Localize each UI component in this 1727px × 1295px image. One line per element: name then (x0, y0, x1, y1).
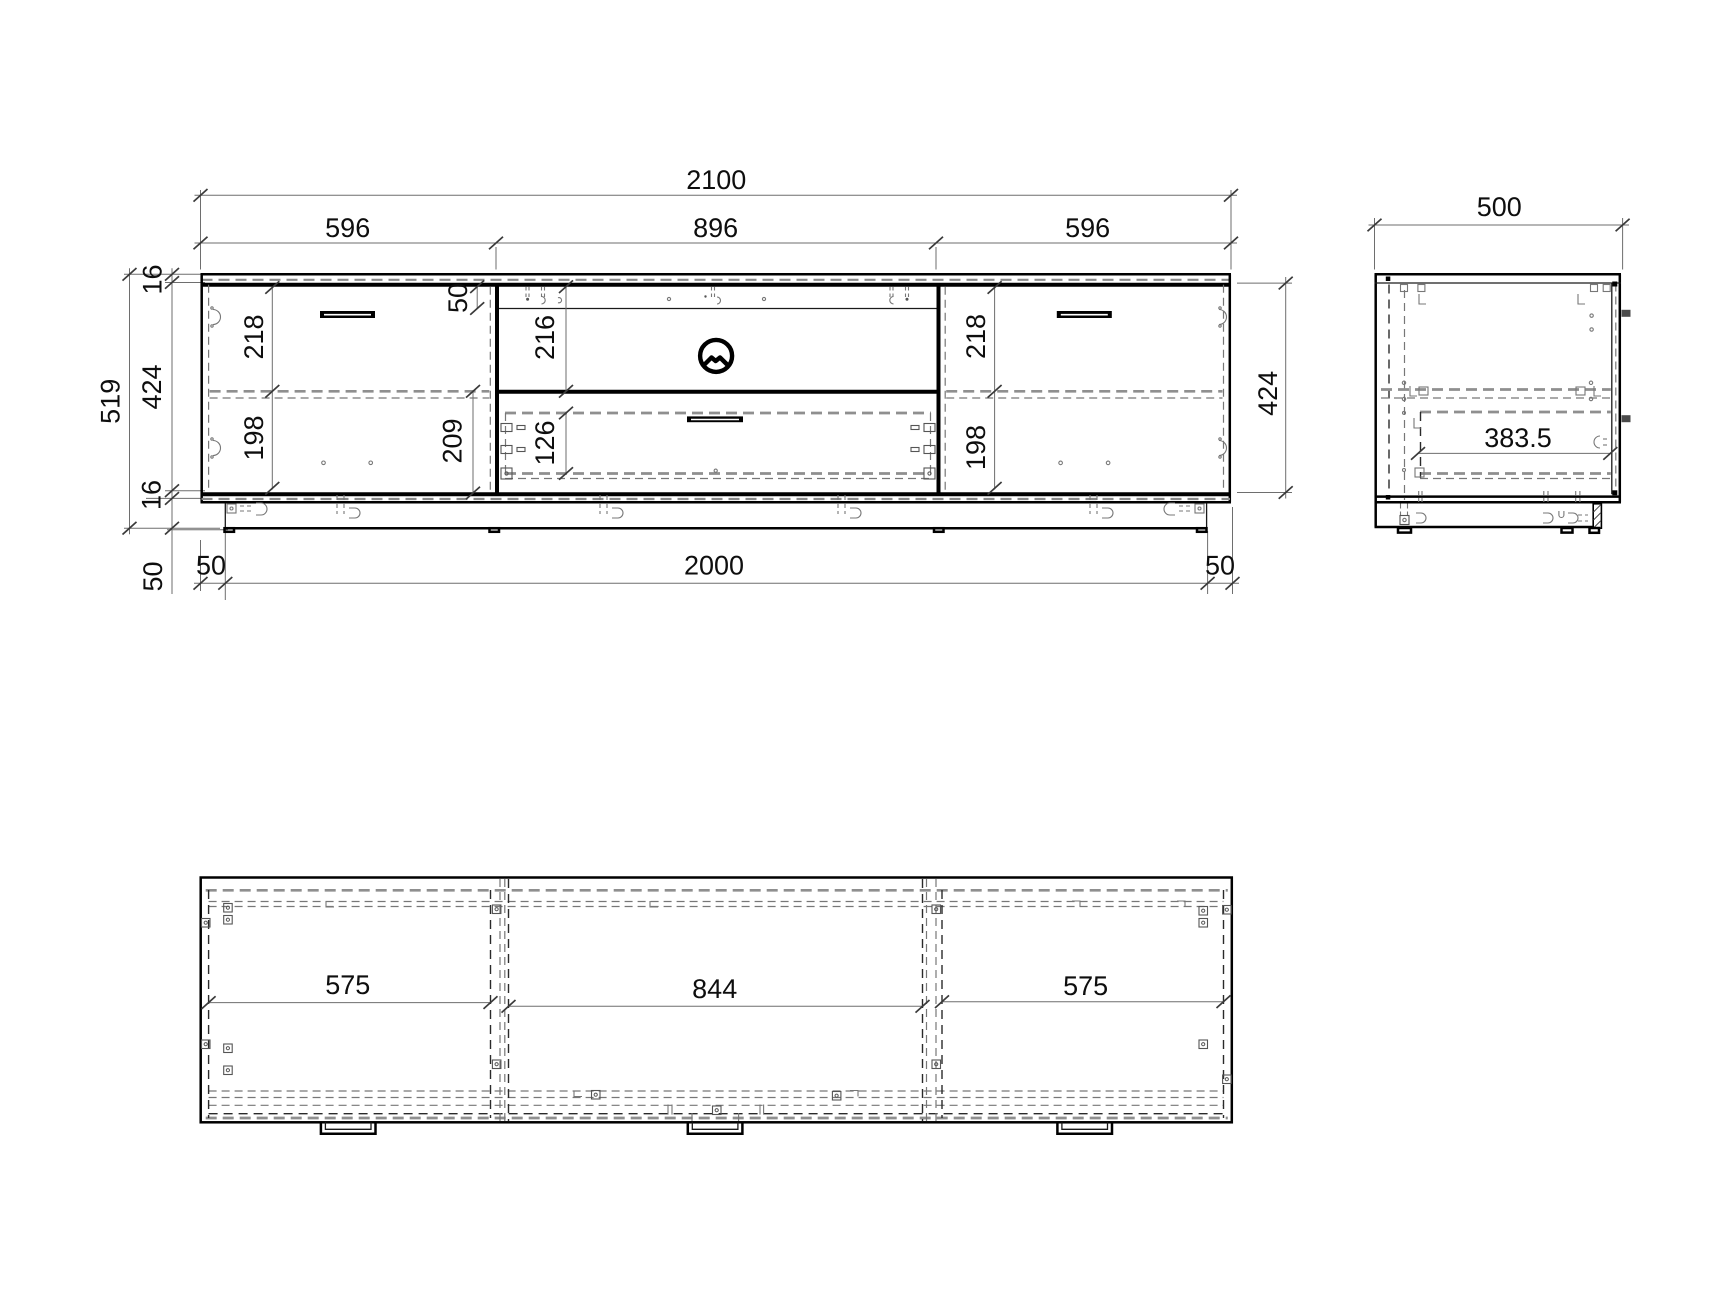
svg-text:50: 50 (138, 561, 168, 591)
svg-text:198: 198 (961, 425, 991, 470)
svg-text:218: 218 (239, 314, 269, 359)
svg-text:575: 575 (325, 970, 370, 1000)
svg-text:424: 424 (1253, 371, 1283, 416)
svg-text:16: 16 (137, 480, 167, 510)
svg-text:596: 596 (1065, 213, 1110, 243)
svg-text:500: 500 (1477, 192, 1522, 222)
svg-text:575: 575 (1063, 971, 1108, 1001)
svg-text:2000: 2000 (684, 551, 744, 581)
svg-text:519: 519 (96, 379, 126, 424)
svg-text:844: 844 (692, 974, 737, 1004)
svg-text:2100: 2100 (686, 165, 746, 195)
svg-text:198: 198 (239, 415, 269, 460)
svg-text:424: 424 (137, 364, 167, 409)
svg-text:383.5: 383.5 (1484, 423, 1552, 453)
svg-text:896: 896 (693, 213, 738, 243)
svg-text:209: 209 (438, 418, 468, 463)
svg-text:218: 218 (961, 314, 991, 359)
svg-text:50: 50 (443, 283, 473, 313)
svg-text:596: 596 (325, 213, 370, 243)
svg-text:216: 216 (530, 315, 560, 360)
svg-text:50: 50 (196, 551, 226, 581)
svg-text:126: 126 (530, 420, 560, 465)
svg-text:16: 16 (138, 264, 168, 294)
svg-text:50: 50 (1205, 551, 1235, 581)
